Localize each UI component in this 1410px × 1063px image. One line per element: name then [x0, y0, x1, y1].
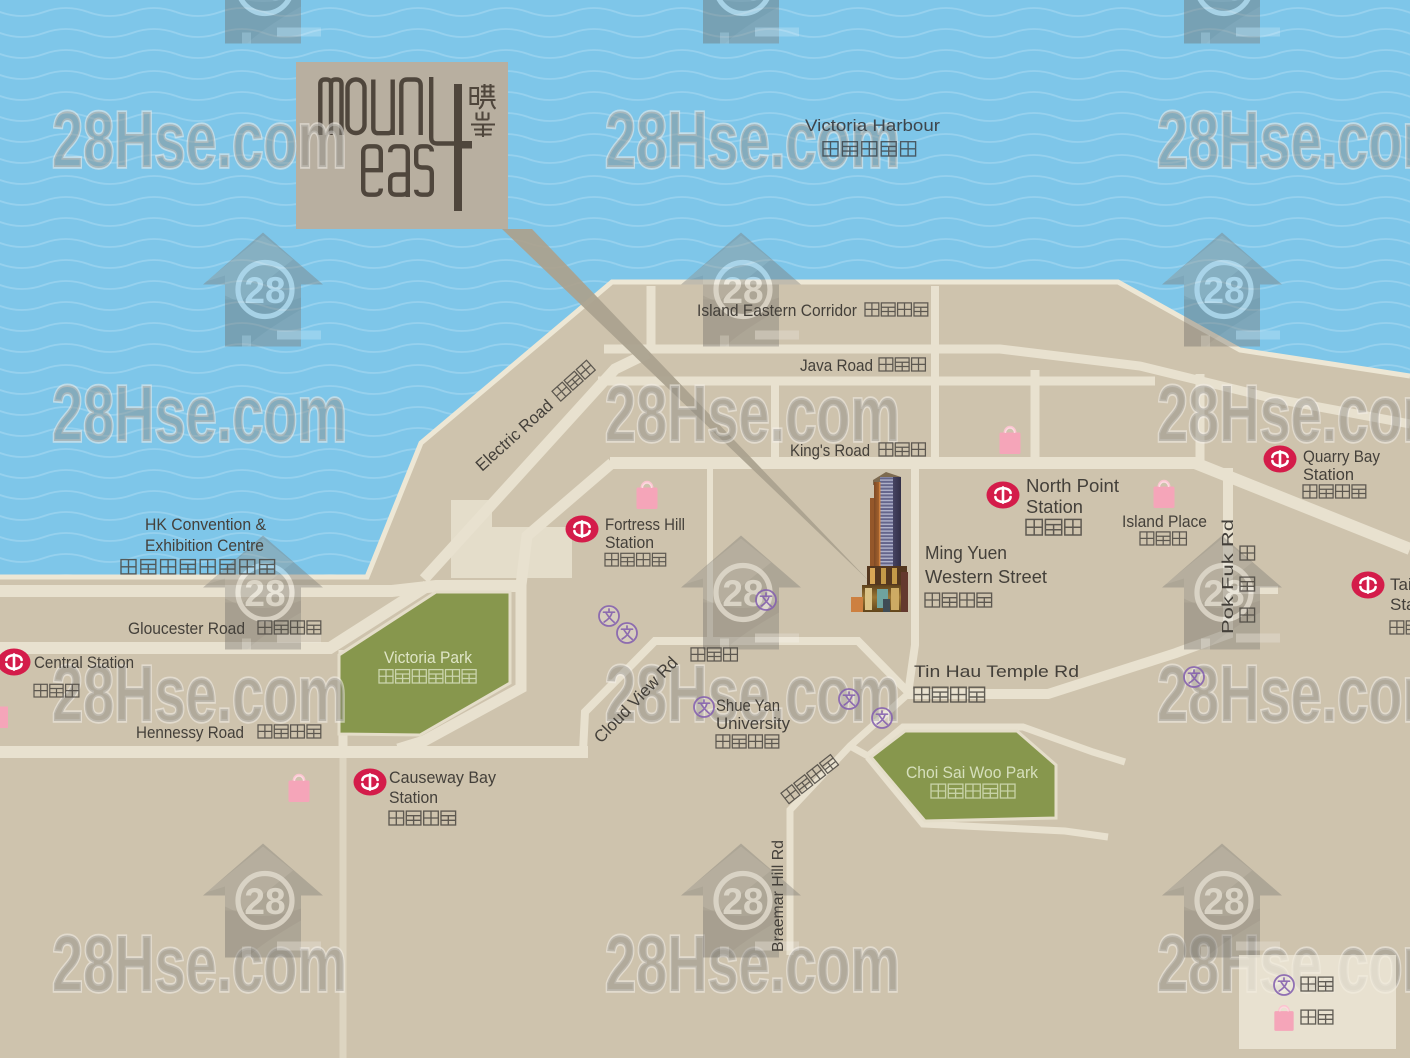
svg-text:Causeway Bay: Causeway Bay	[389, 768, 496, 787]
svg-text:Station: Station	[1026, 496, 1083, 517]
svg-text:Fortress Hill: Fortress Hill	[605, 515, 685, 534]
svg-text:28: 28	[244, 270, 285, 311]
svg-text:28: 28	[722, 0, 763, 8]
svg-text:Central Station: Central Station	[34, 653, 134, 672]
svg-text:28: 28	[244, 881, 285, 922]
svg-text:Victoria Park: Victoria Park	[384, 648, 472, 667]
svg-text:Ming Yuen: Ming Yuen	[925, 543, 1007, 563]
svg-text:28Hse.com: 28Hse.com	[52, 95, 347, 184]
svg-text:28Hse.com: 28Hse.com	[1157, 95, 1410, 184]
svg-text:Choi Sai Woo Park: Choi Sai Woo Park	[906, 763, 1038, 782]
svg-text:Pok Fuk Rd: Pok Fuk Rd	[1220, 519, 1237, 634]
svg-text:28: 28	[722, 881, 763, 922]
svg-text:28Hse.com: 28Hse.com	[52, 369, 347, 458]
svg-text:Java Road: Java Road	[800, 356, 873, 375]
svg-text:Station: Station	[1303, 465, 1354, 484]
svg-text:Island Eastern Corridor: Island Eastern Corridor	[697, 301, 857, 320]
svg-text:King's Road: King's Road	[790, 441, 870, 460]
svg-text:Victoria Harbour: Victoria Harbour	[805, 116, 940, 135]
svg-text:HK Convention &: HK Convention &	[145, 515, 267, 534]
svg-text:North Point: North Point	[1026, 475, 1119, 496]
svg-text:28: 28	[244, 0, 285, 8]
svg-text:Gloucester Road: Gloucester Road	[128, 619, 245, 638]
svg-text:Island Place: Island Place	[1122, 512, 1207, 531]
svg-text:28Hse.com: 28Hse.com	[1157, 369, 1410, 458]
svg-text:Tai: Tai	[1390, 575, 1410, 594]
svg-text:Tin Hau Temple Rd: Tin Hau Temple Rd	[914, 662, 1079, 681]
svg-text:Quarry Bay: Quarry Bay	[1303, 447, 1380, 466]
svg-text:Hennessy Road: Hennessy Road	[136, 723, 244, 742]
svg-text:28: 28	[244, 573, 285, 614]
svg-text:Station: Station	[605, 533, 654, 552]
svg-text:Shue Yan: Shue Yan	[716, 696, 780, 715]
svg-text:Braemar Hill Rd: Braemar Hill Rd	[770, 840, 787, 952]
svg-text:28Hse.com: 28Hse.com	[1157, 649, 1410, 738]
svg-text:28Hse.com: 28Hse.com	[52, 919, 347, 1008]
svg-text:28Hse.com: 28Hse.com	[605, 95, 900, 184]
svg-text:Station: Station	[389, 788, 438, 807]
svg-text:28: 28	[1203, 270, 1244, 311]
svg-text:28: 28	[1203, 0, 1244, 8]
svg-text:University: University	[716, 714, 790, 733]
svg-text:Sta: Sta	[1390, 595, 1410, 614]
svg-text:28: 28	[1203, 881, 1244, 922]
svg-text:Western Street: Western Street	[925, 567, 1047, 587]
svg-text:Exhibition Centre: Exhibition Centre	[145, 536, 264, 555]
